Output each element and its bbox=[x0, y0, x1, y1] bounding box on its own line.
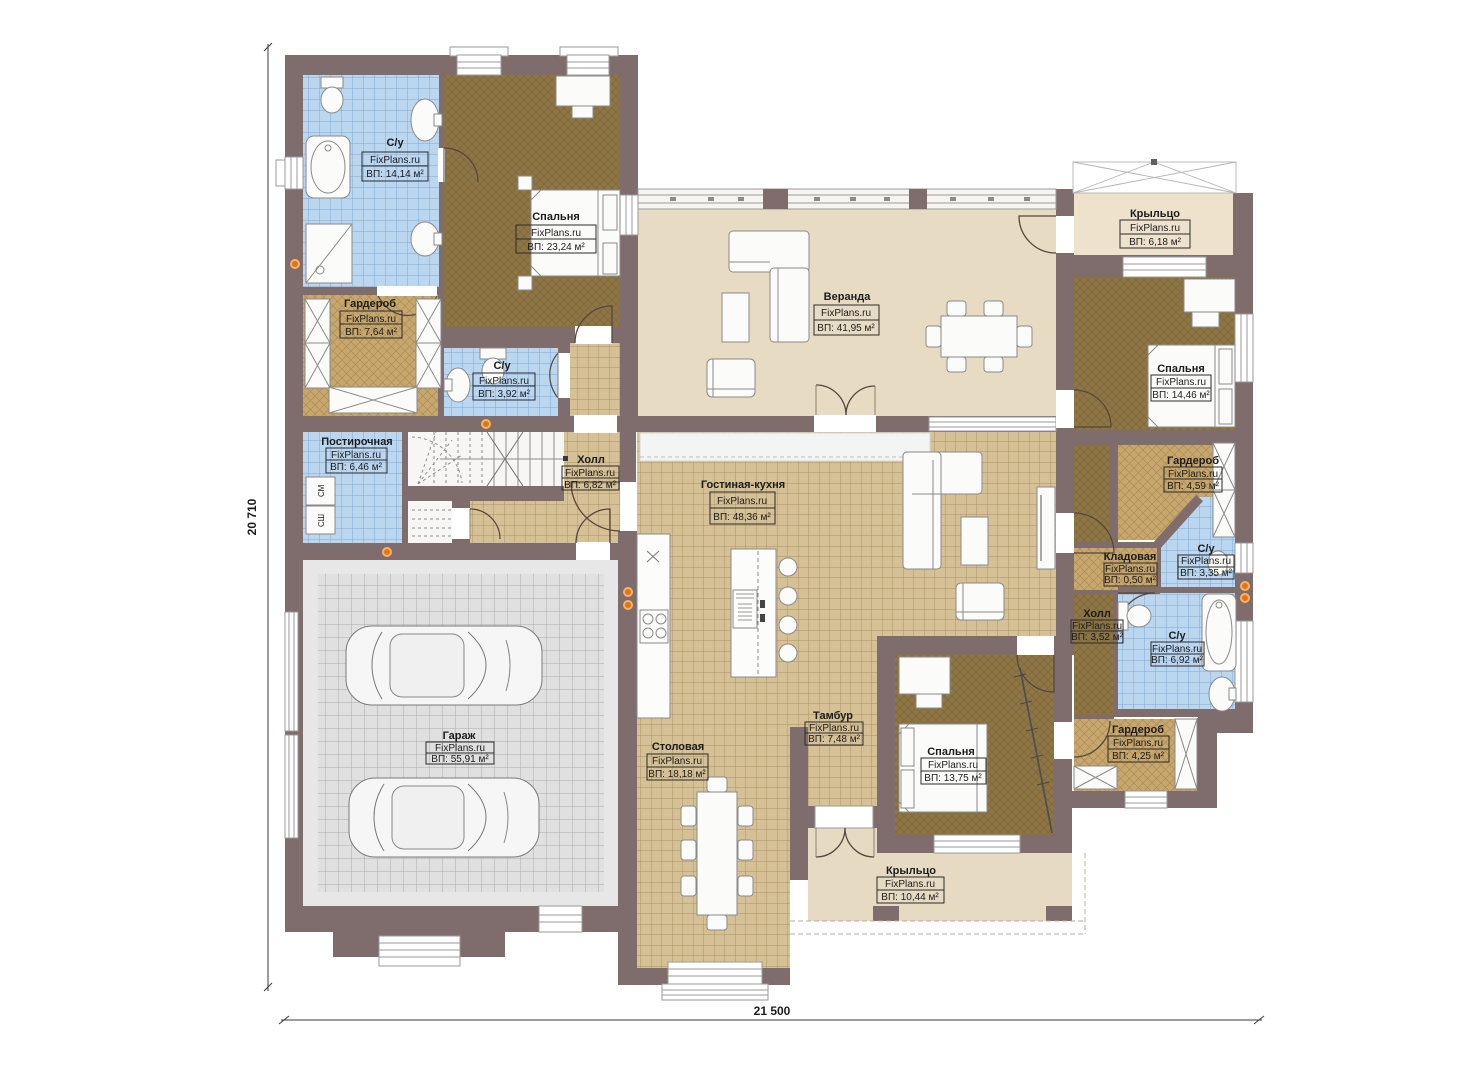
svg-text:Столовая: Столовая bbox=[652, 741, 704, 753]
svg-text:Холл: Холл bbox=[1083, 608, 1111, 620]
svg-text:Гардероб: Гардероб bbox=[1167, 455, 1219, 467]
svg-text:С/у: С/у bbox=[1168, 630, 1186, 642]
svg-text:Тамбур: Тамбур bbox=[813, 710, 853, 722]
svg-text:ВП: 6,92 м²: ВП: 6,92 м² bbox=[1151, 655, 1204, 666]
svg-text:ВП: 55,91 м²: ВП: 55,91 м² bbox=[431, 754, 489, 765]
svg-text:FixPlans.ru: FixPlans.ru bbox=[1152, 644, 1202, 655]
svg-text:FixPlans.ru: FixPlans.ru bbox=[531, 228, 581, 239]
svg-text:FixPlans.ru: FixPlans.ru bbox=[479, 376, 529, 387]
svg-text:ВП: 48,36 м²: ВП: 48,36 м² bbox=[713, 512, 771, 523]
svg-text:FixPlans.ru: FixPlans.ru bbox=[1113, 738, 1163, 749]
svg-text:СМ: СМ bbox=[317, 484, 326, 497]
svg-text:ВП: 14,14 м²: ВП: 14,14 м² bbox=[366, 169, 424, 180]
svg-text:ВП: 6,82 м²: ВП: 6,82 м² bbox=[564, 480, 617, 491]
svg-text:Гостиная-кухня: Гостиная-кухня bbox=[701, 479, 785, 491]
svg-text:Гараж: Гараж bbox=[443, 730, 476, 742]
svg-text:ВП: 10,44 м²: ВП: 10,44 м² bbox=[881, 892, 939, 903]
svg-text:Гардероб: Гардероб bbox=[1112, 724, 1164, 736]
svg-text:Крыльцо: Крыльцо bbox=[886, 865, 936, 877]
svg-text:FixPlans.ru: FixPlans.ru bbox=[1181, 556, 1231, 567]
svg-text:ВП: 6,46 м²: ВП: 6,46 м² bbox=[330, 462, 383, 473]
svg-text:ВП: 7,48 м²: ВП: 7,48 м² bbox=[808, 734, 861, 745]
svg-text:Спальня: Спальня bbox=[927, 746, 975, 758]
svg-text:Кладовая: Кладовая bbox=[1104, 551, 1157, 563]
svg-text:ВП: 13,75 м²: ВП: 13,75 м² bbox=[924, 773, 982, 784]
svg-text:21 500: 21 500 bbox=[754, 1004, 791, 1018]
svg-text:20 710: 20 710 bbox=[245, 498, 259, 535]
svg-text:Спальня: Спальня bbox=[1157, 363, 1205, 375]
svg-text:FixPlans.ru: FixPlans.ru bbox=[717, 496, 767, 507]
svg-text:FixPlans.ru: FixPlans.ru bbox=[331, 450, 381, 461]
svg-text:FixPlans.ru: FixPlans.ru bbox=[435, 743, 485, 754]
svg-text:ВП: 14,46 м²: ВП: 14,46 м² bbox=[1152, 390, 1210, 401]
svg-text:Постирочная: Постирочная bbox=[321, 436, 392, 448]
svg-text:С/у: С/у bbox=[386, 137, 404, 149]
svg-text:ВП: 6,18 м²: ВП: 6,18 м² bbox=[1129, 237, 1182, 248]
svg-text:FixPlans.ru: FixPlans.ru bbox=[652, 756, 702, 767]
svg-text:FixPlans.ru: FixPlans.ru bbox=[1168, 469, 1218, 480]
svg-text:FixPlans.ru: FixPlans.ru bbox=[885, 879, 935, 890]
svg-text:С/у: С/у bbox=[493, 360, 511, 372]
svg-text:ВП: 0,50 м²: ВП: 0,50 м² bbox=[1104, 575, 1157, 586]
svg-text:Веранда: Веранда bbox=[824, 291, 872, 303]
svg-text:FixPlans.ru: FixPlans.ru bbox=[821, 308, 871, 319]
svg-text:ВП: 18,18 м²: ВП: 18,18 м² bbox=[648, 769, 706, 780]
svg-text:ВП: 3,35 м²: ВП: 3,35 м² bbox=[1180, 568, 1233, 579]
svg-text:Гардероб: Гардероб bbox=[344, 298, 396, 310]
svg-text:FixPlans.ru: FixPlans.ru bbox=[1105, 564, 1155, 575]
svg-text:ВП: 41,95 м²: ВП: 41,95 м² bbox=[817, 323, 875, 334]
svg-text:FixPlans.ru: FixPlans.ru bbox=[1072, 621, 1122, 632]
svg-text:Крыльцо: Крыльцо bbox=[1130, 208, 1180, 220]
svg-text:ВП: 7,64 м²: ВП: 7,64 м² bbox=[345, 327, 398, 338]
svg-text:FixPlans.ru: FixPlans.ru bbox=[565, 468, 615, 479]
svg-text:FixPlans.ru: FixPlans.ru bbox=[370, 155, 420, 166]
svg-text:ВП: 4,59 м²: ВП: 4,59 м² bbox=[1167, 481, 1220, 492]
svg-text:FixPlans.ru: FixPlans.ru bbox=[346, 314, 396, 325]
svg-text:FixPlans.ru: FixPlans.ru bbox=[1156, 377, 1206, 388]
svg-text:FixPlans.ru: FixPlans.ru bbox=[809, 723, 859, 734]
svg-text:ВП: 3,52 м²: ВП: 3,52 м² bbox=[1071, 632, 1124, 643]
svg-text:Спальня: Спальня bbox=[532, 211, 580, 223]
svg-text:FixPlans.ru: FixPlans.ru bbox=[1130, 223, 1180, 234]
svg-text:Холл: Холл bbox=[577, 454, 605, 466]
svg-text:СШ: СШ bbox=[317, 514, 326, 527]
svg-text:FixPlans.ru: FixPlans.ru bbox=[928, 760, 978, 771]
svg-text:ВП: 23,24 м²: ВП: 23,24 м² bbox=[527, 242, 585, 253]
svg-text:ВП: 3,92 м²: ВП: 3,92 м² bbox=[478, 389, 531, 400]
svg-text:С/у: С/у bbox=[1197, 543, 1215, 555]
svg-text:ВП: 4,25 м²: ВП: 4,25 м² bbox=[1112, 751, 1165, 762]
